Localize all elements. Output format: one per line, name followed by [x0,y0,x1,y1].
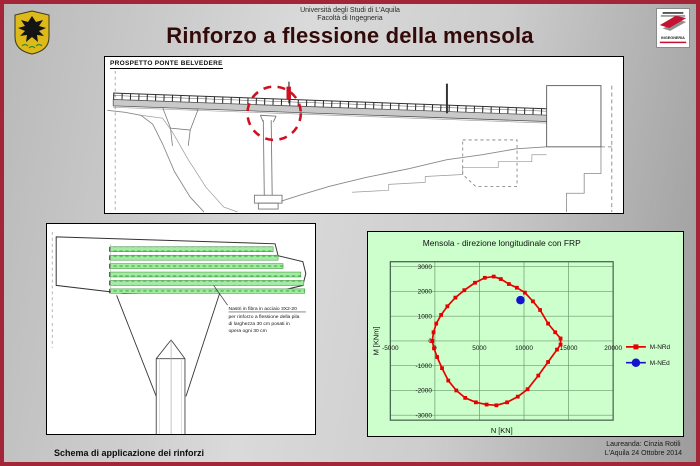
svg-text:3000: 3000 [418,264,433,271]
engineering-wing-icon: INGEGNERIA [657,9,689,47]
svg-text:M [KNm]: M [KNm] [371,327,380,356]
caption: Schema di applicazione dei rinforzi [54,448,204,458]
svg-text:-3000: -3000 [415,412,432,419]
header: Università degli Studi di L'Aquila Facol… [4,7,696,23]
svg-text:-1000: -1000 [415,363,432,370]
date-line: L'Aquila 24 Ottobre 2014 [605,449,682,458]
author-line: Laureanda: Cinzia Rotili [605,440,682,449]
page-title: Rinforzo a flessione della mensola [4,23,696,49]
bridge-elevation-panel: PROSPETTO PONTE BELVEDERE [104,56,624,214]
faculty-logo-label: INGEGNERIA [661,36,685,40]
svg-text:M-NEd: M-NEd [650,360,670,367]
svg-text:2000: 2000 [418,289,433,296]
pier-detail-drawing: Nastri in fibra in acciaio 3X2-20 per ri… [47,224,315,434]
svg-text:-2000: -2000 [415,388,432,395]
svg-text:-5000: -5000 [382,345,399,352]
svg-text:M-NRd: M-NRd [650,344,671,351]
bridge-elevation-drawing [105,57,623,213]
note-line-1: Nastri in fibra in acciaio 3X2-20 [229,306,298,312]
svg-text:Mensola - direzione longitudin: Mensola - direzione longitudinale con FR… [423,238,581,248]
faculty-logo: INGEGNERIA [656,8,690,48]
note-line-2: per rinforzo a flessione della pila [229,314,300,320]
svg-text:1000: 1000 [418,313,433,320]
university-name: Università degli Studi di L'Aquila [4,7,696,15]
note-line-3: di larghezza 30 cm posati in [229,321,290,327]
svg-text:5000: 5000 [472,345,487,352]
interaction-chart-panel: -500005000100001500020000-3000-2000-1000… [367,231,684,437]
note-line-4: opera ogni 30 cm [229,328,267,334]
slide: Università degli Studi di L'Aquila Facol… [0,0,700,466]
svg-text:10000: 10000 [515,345,533,352]
highlight-marker [286,87,290,100]
svg-text:N [KN]: N [KN] [491,426,513,435]
author-date-block: Laureanda: Cinzia Rotili L'Aquila 24 Ott… [605,440,682,458]
svg-text:20000: 20000 [604,345,622,352]
mn-interaction-chart: -500005000100001500020000-3000-2000-1000… [368,232,683,436]
reinforcement-detail-panel: Nastri in fibra in acciaio 3X2-20 per ri… [46,223,316,435]
faculty-name: Facoltà di Ingegneria [4,15,696,23]
